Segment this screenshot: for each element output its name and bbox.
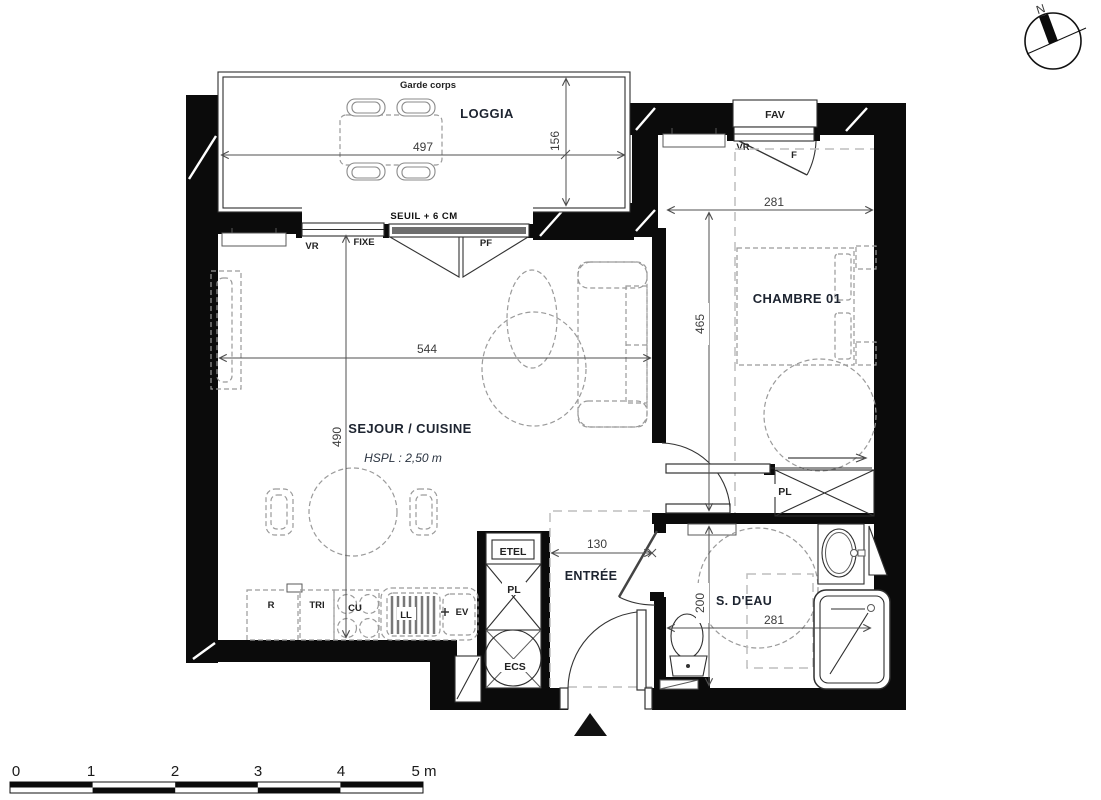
scale-0: 0 xyxy=(12,763,20,780)
scale-3: 3 xyxy=(254,763,262,780)
pf-leaf-swing-right xyxy=(463,237,528,277)
tri-box xyxy=(300,590,334,640)
scale-2: 2 xyxy=(171,763,179,780)
chair xyxy=(416,495,432,529)
clearance-circle xyxy=(764,359,876,471)
wall-loggia-right xyxy=(632,103,658,237)
wall-sdeau-jamb-top xyxy=(654,513,666,533)
pf-leaf-swing-left xyxy=(390,237,459,277)
sejour-label: SEJOUR / CUISINE xyxy=(348,421,471,436)
north-label: N xyxy=(1034,1,1047,17)
rug-ellipse xyxy=(482,312,586,426)
washbasin xyxy=(818,524,865,584)
wall-sdeau-left xyxy=(654,597,666,690)
faucet-icon xyxy=(441,608,449,616)
nightstand xyxy=(856,246,876,269)
sejour-zone: SEJOUR / CUISINE HSPL : 2,50 m xyxy=(211,228,647,556)
pl-entree-label: PL xyxy=(507,584,521,596)
chair xyxy=(410,489,437,535)
vr-chambre-label: VR xyxy=(736,142,749,153)
hob-label: CU xyxy=(348,603,362,614)
chair xyxy=(352,102,380,113)
sdeau-door-arc xyxy=(619,597,655,605)
tri-label: TRI xyxy=(309,600,324,611)
wall-divider-chambre xyxy=(652,228,666,443)
chambre-door-leaf xyxy=(666,504,730,513)
vr-label: VR xyxy=(305,241,318,252)
sdeau-label: S. D'EAU xyxy=(716,594,772,608)
wall-sdeau-top xyxy=(652,513,874,524)
entrance-door-leaf xyxy=(637,610,646,690)
closet-jamb-right xyxy=(541,531,550,688)
compass: N xyxy=(1025,1,1086,69)
north-needle xyxy=(1039,14,1058,44)
etel-label: ETEL xyxy=(500,546,527,558)
fridge-label: R xyxy=(268,600,275,611)
radiator-chambre xyxy=(663,134,725,147)
chair xyxy=(266,489,293,535)
south-windows: SEUIL + 6 CM VR FIXE PF xyxy=(302,204,533,277)
window-f-arc xyxy=(807,141,816,175)
scale-4: 4 xyxy=(337,763,345,780)
fav-label: FAV xyxy=(765,109,785,121)
loggia-label: LOGGIA xyxy=(460,106,514,121)
garde-corps-label: Garde corps xyxy=(400,80,456,91)
dim-544: 544 xyxy=(417,342,437,356)
nightstand xyxy=(856,342,876,365)
window-pf-glazing xyxy=(392,227,526,234)
scale-1: 1 xyxy=(87,763,95,780)
dim-130: 130 xyxy=(587,537,607,551)
radiator-sejour xyxy=(222,233,286,246)
wall-bottom-right xyxy=(652,688,906,710)
wall-left xyxy=(186,95,218,663)
wall-bottom-kitchen xyxy=(186,640,434,662)
chair xyxy=(271,495,287,529)
fridge-hinge xyxy=(287,584,302,592)
hob-box xyxy=(334,590,379,640)
sliding-door-panel xyxy=(666,464,770,473)
hspl-label: HSPL : 2,50 m xyxy=(364,451,442,465)
scale-5m: 5 m xyxy=(411,763,436,780)
entrance-door-arc xyxy=(568,612,637,688)
ecs-label: ECS xyxy=(504,661,526,673)
dim-490: 490 xyxy=(330,427,344,447)
wardrobe-left-inner xyxy=(217,278,232,382)
door-hinge-block xyxy=(650,592,664,601)
pl-chambre-label: PL xyxy=(778,486,792,498)
dim-281-sdeau: 281 xyxy=(764,613,784,627)
clearance-circle xyxy=(698,528,818,648)
floor-plan-page: Garde corps LOGGIA SEUIL + 6 CM VR FIXE … xyxy=(0,0,1101,800)
chambre-door-arc xyxy=(662,443,730,507)
chair xyxy=(402,167,430,178)
scale-bar: 0 1 2 3 4 5 m xyxy=(10,763,437,793)
chair xyxy=(402,102,430,113)
wall-step xyxy=(430,640,457,710)
fixe-label: FIXE xyxy=(353,237,374,248)
dim-281-chambre: 281 xyxy=(764,195,784,209)
entree-closet: ETEL PL ECS xyxy=(485,533,541,688)
floor-plan-drawing: Garde corps LOGGIA SEUIL + 6 CM VR FIXE … xyxy=(0,0,1101,800)
sink-label: EV xyxy=(456,607,469,618)
shower xyxy=(814,590,890,689)
washer-label: LL xyxy=(400,610,412,621)
sdeau-door-leaf xyxy=(619,531,657,597)
burner xyxy=(338,619,357,638)
window-cap xyxy=(296,221,302,238)
dim-465: 465 xyxy=(693,314,707,334)
entree-label: ENTRÉE xyxy=(565,568,618,583)
door-jamb-cap xyxy=(560,688,568,709)
door-jamb-cap xyxy=(645,688,652,709)
burner xyxy=(360,595,379,614)
chair xyxy=(352,167,380,178)
f-label: F xyxy=(791,150,797,161)
dim-156: 156 xyxy=(548,131,562,151)
armchair-ellipse xyxy=(507,270,557,368)
fridge-box xyxy=(247,590,298,640)
seuil-label: SEUIL + 6 CM xyxy=(390,211,457,222)
pillow xyxy=(835,313,851,359)
chambre-label: CHAMBRE 01 xyxy=(753,291,842,306)
burner xyxy=(360,619,379,638)
dim-497: 497 xyxy=(413,140,433,154)
dining-table xyxy=(266,468,437,556)
faucet xyxy=(851,550,858,557)
sofa xyxy=(578,262,647,427)
entrance-arrow xyxy=(574,713,607,736)
pf-label: PF xyxy=(480,238,492,249)
radiator-sdeau xyxy=(688,524,736,535)
dim-200: 200 xyxy=(693,593,707,613)
